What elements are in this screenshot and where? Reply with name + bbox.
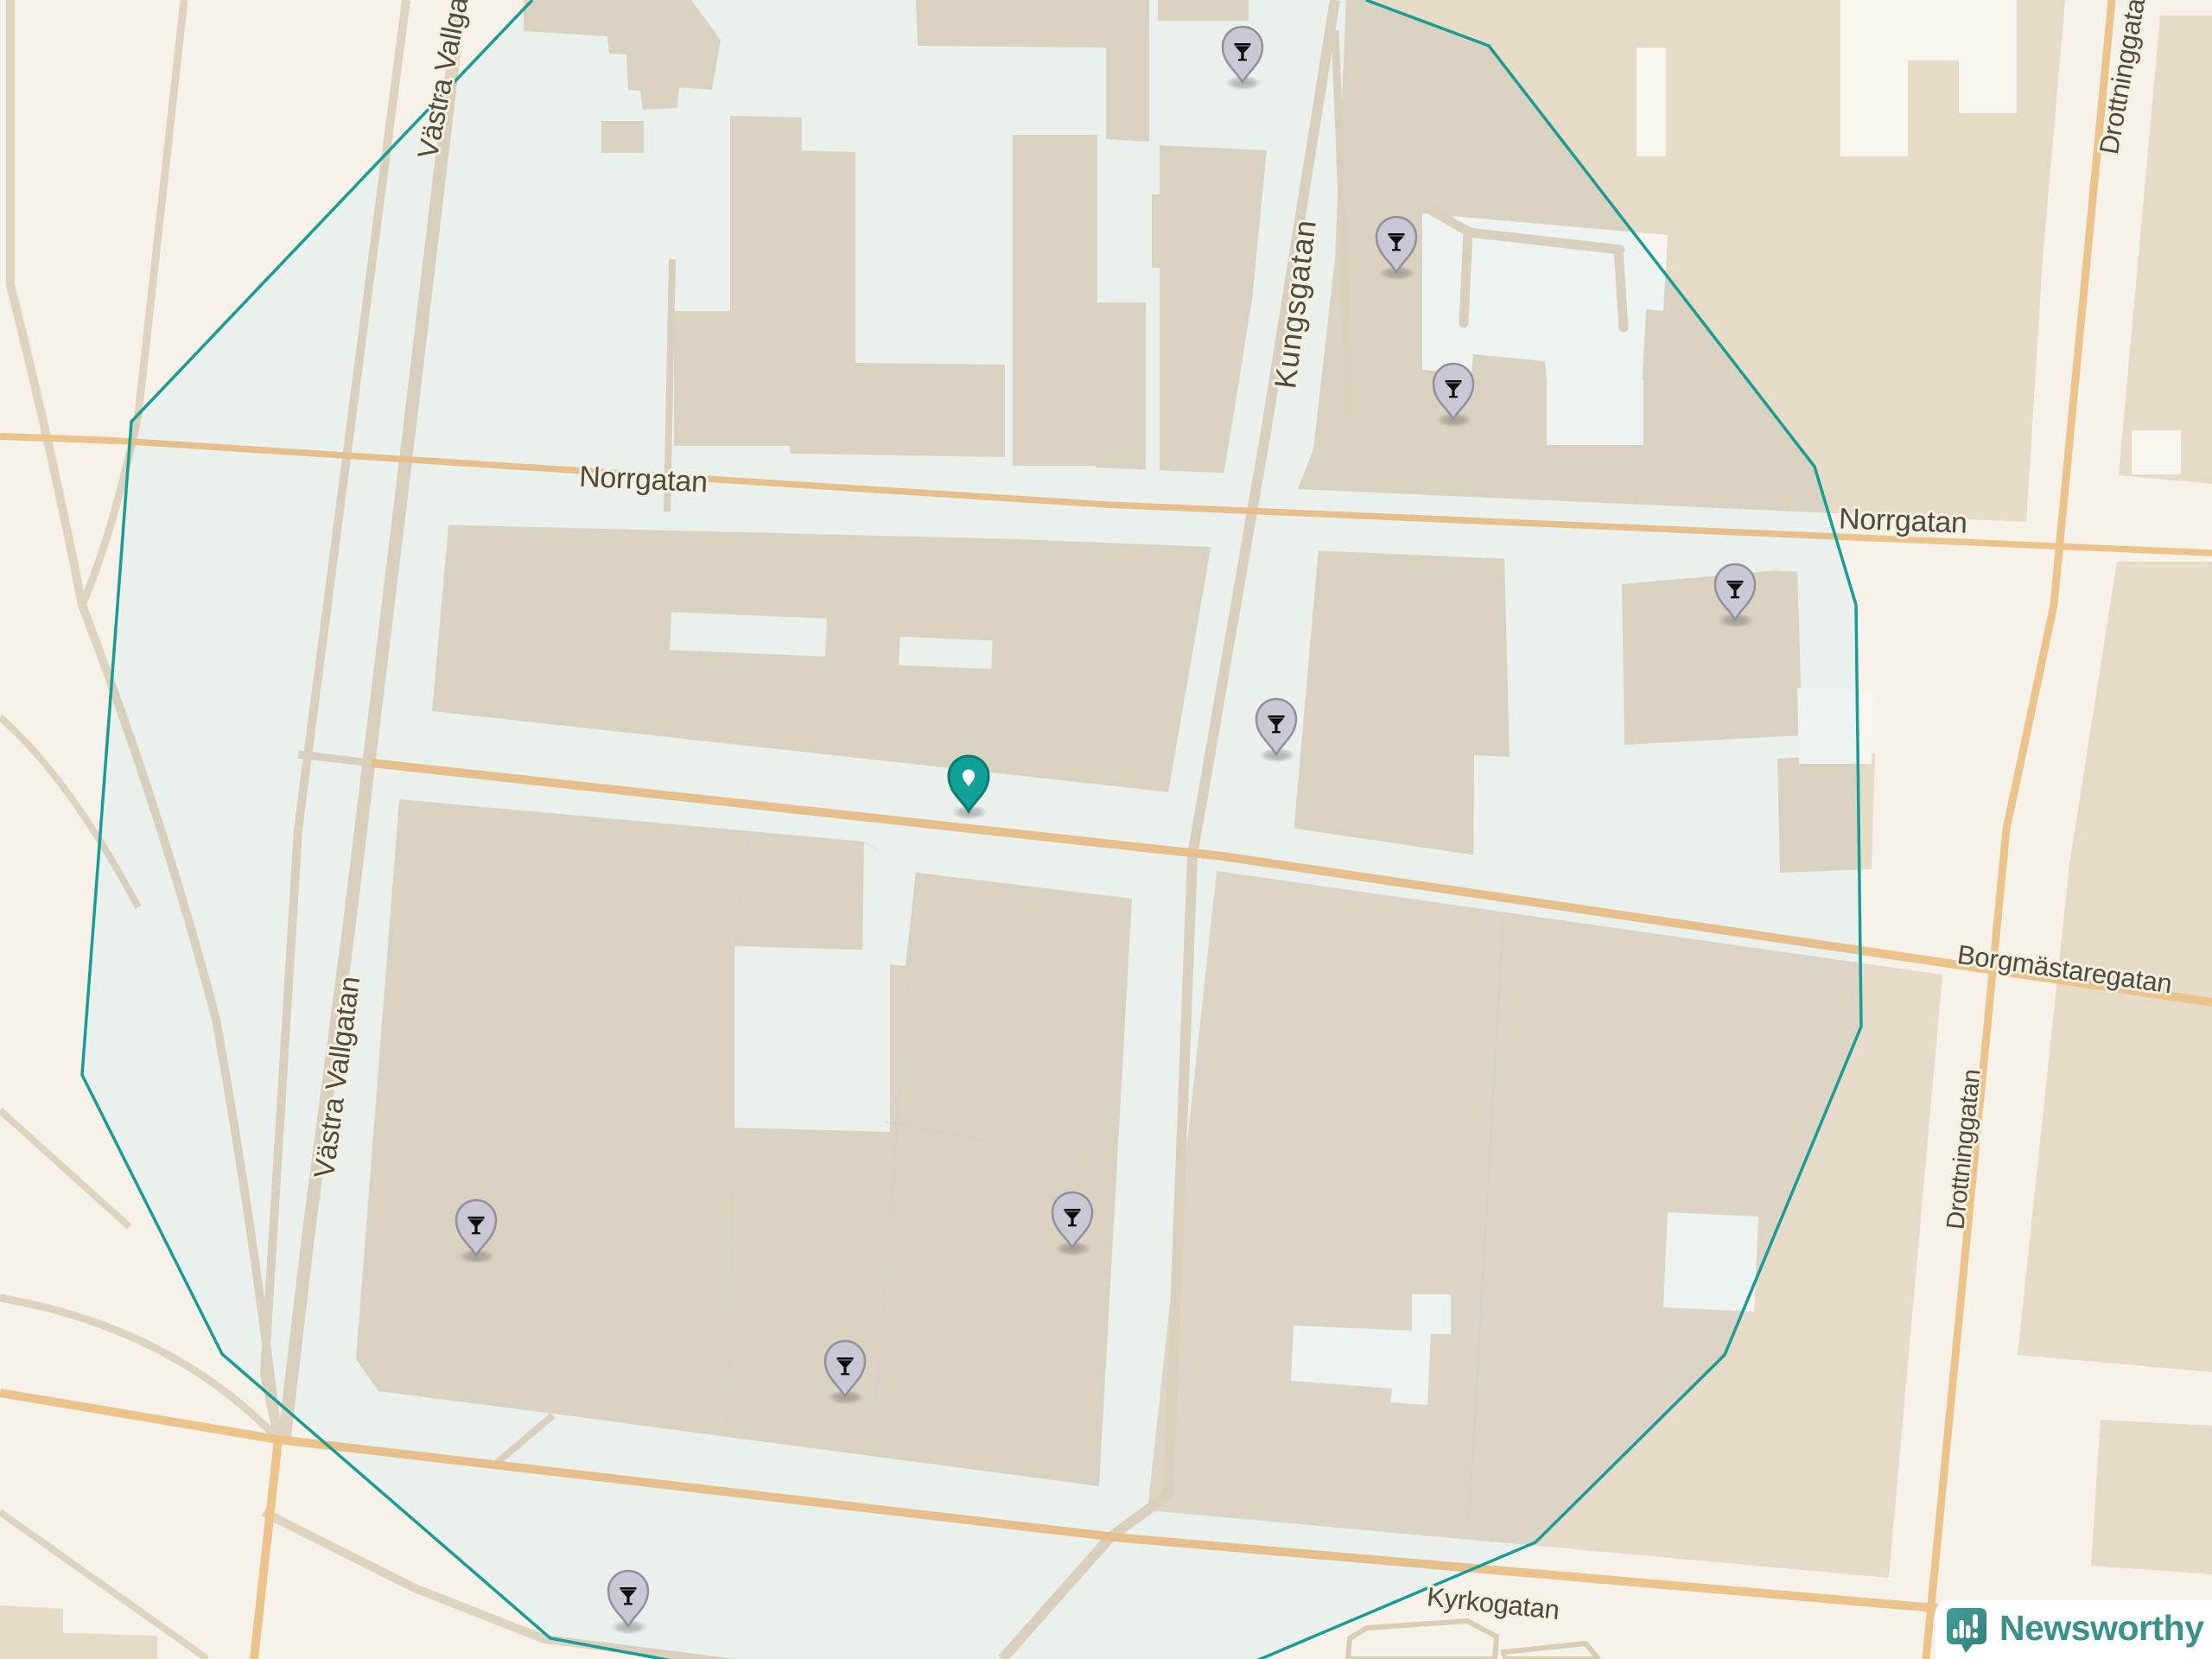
svg-text:Norrgatan: Norrgatan	[578, 461, 708, 499]
svg-text:Newsworthy: Newsworthy	[1999, 1608, 2204, 1648]
svg-text:Norrgatan: Norrgatan	[1839, 502, 1968, 539]
